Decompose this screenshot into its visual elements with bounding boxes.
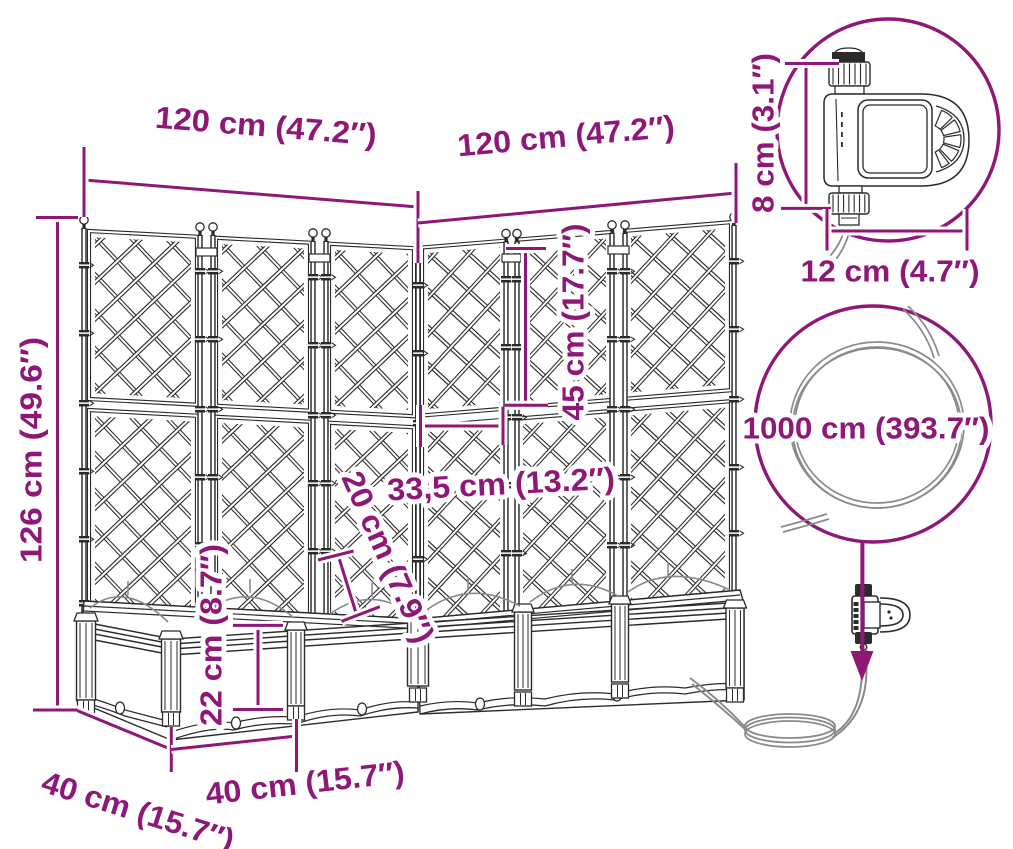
svg-text:126 cm (49.6″): 126 cm (49.6″) (14, 337, 49, 563)
svg-text:120 cm (47.2″): 120 cm (47.2″) (154, 100, 378, 153)
svg-text:45 cm (17.7″): 45 cm (17.7″) (556, 224, 591, 421)
svg-text:8 cm (3.1″): 8 cm (3.1″) (746, 53, 781, 213)
svg-text:12 cm (4.7″): 12 cm (4.7″) (801, 254, 980, 289)
svg-text:1000 cm (393.7″): 1000 cm (393.7″) (743, 411, 990, 446)
svg-text:22 cm (8.7″): 22 cm (8.7″) (194, 544, 229, 726)
svg-text:120 cm (47.2″): 120 cm (47.2″) (456, 109, 676, 164)
svg-text:40 cm (15.7″): 40 cm (15.7″) (204, 754, 407, 811)
